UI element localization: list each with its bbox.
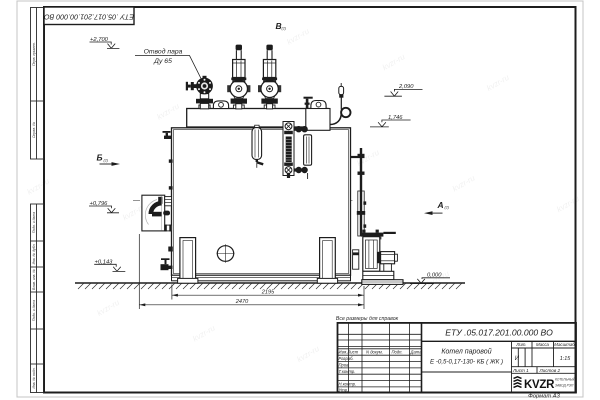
- svg-text:KVZR: KVZR: [524, 379, 555, 391]
- svg-text:Подп. и дата: Подп. и дата: [32, 300, 36, 321]
- svg-text:КОТЕЛЬНЫЙ: КОТЕЛЬНЫЙ: [555, 378, 576, 382]
- svg-text:Все размеры для справок: Все размеры для справок: [336, 316, 399, 322]
- svg-text:Лит.: Лит.: [515, 342, 526, 347]
- svg-text:А: А: [437, 200, 444, 210]
- svg-text:ЕТУ .05.017.201.00.000 ВО: ЕТУ .05.017.201.00.000 ВО: [445, 327, 553, 337]
- svg-text:Котел паровой: Котел паровой: [441, 348, 491, 356]
- svg-text:Изм.Лист: Изм.Лист: [339, 350, 359, 355]
- svg-text:Инв. № дубл.: Инв. № дубл.: [32, 244, 36, 265]
- svg-text:Инв. № подл.: Инв. № подл.: [32, 367, 36, 388]
- svg-text:Н.контр.: Н.контр.: [339, 382, 357, 387]
- svg-text:2195: 2195: [261, 289, 275, 295]
- svg-text:Пров.: Пров.: [339, 363, 350, 368]
- svg-text:Перв. примен.: Перв. примен.: [32, 42, 36, 66]
- svg-text:Б: Б: [97, 153, 103, 163]
- svg-text:ЗАВОД РЭП: ЗАВОД РЭП: [555, 384, 574, 388]
- svg-text:N докум.: N докум.: [366, 350, 383, 355]
- svg-text:1:15: 1:15: [560, 356, 571, 362]
- svg-text:Масса: Масса: [536, 342, 550, 347]
- svg-text:Ду 65: Ду 65: [153, 58, 172, 65]
- svg-text:Листов 2: Листов 2: [539, 368, 561, 373]
- svg-text:Утв.: Утв.: [339, 388, 349, 393]
- svg-text:Подп.: Подп.: [392, 350, 403, 355]
- svg-text:Т.контр.: Т.контр.: [339, 369, 356, 374]
- svg-text:Формат А3: Формат А3: [528, 394, 560, 400]
- svg-text:Отвод пара: Отвод пара: [144, 48, 183, 56]
- svg-text:Лист 1: Лист 1: [512, 368, 529, 373]
- svg-text:И: И: [515, 356, 520, 362]
- svg-text:Взам. инв. №: Взам. инв. №: [32, 269, 36, 290]
- svg-text:Е -0,5-0,17-130- КБ ( ЖК ): Е -0,5-0,17-130- КБ ( ЖК ): [430, 359, 503, 366]
- svg-text:Разраб.: Разраб.: [339, 356, 354, 361]
- svg-text:(2): (2): [445, 206, 449, 210]
- svg-text:2470: 2470: [235, 299, 249, 305]
- svg-text:Масштаб: Масштаб: [554, 342, 575, 347]
- svg-text:ЕТУ .05.017.201.00.000 ВО: ЕТУ .05.017.201.00.000 ВО: [44, 12, 134, 21]
- svg-text:(2): (2): [104, 159, 108, 163]
- svg-text:Дата: Дата: [410, 350, 423, 355]
- svg-text:(2): (2): [282, 27, 286, 31]
- svg-text:Справ. №: Справ. №: [32, 122, 36, 138]
- svg-text:Подп. и дата: Подп. и дата: [32, 212, 36, 233]
